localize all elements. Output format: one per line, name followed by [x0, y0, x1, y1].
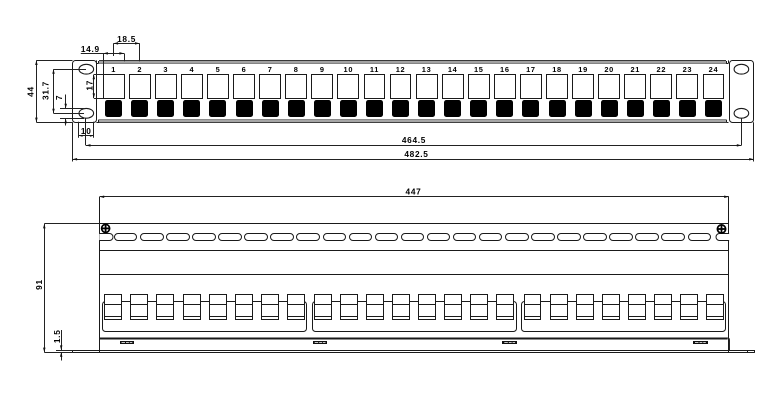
svg-text:91: 91 [34, 279, 44, 290]
svg-text:15: 15 [474, 65, 484, 74]
svg-text:14.9: 14.9 [81, 44, 100, 54]
svg-text:5: 5 [216, 65, 221, 74]
svg-text:6: 6 [242, 65, 247, 74]
svg-text:17: 17 [84, 80, 94, 91]
svg-text:464.5: 464.5 [402, 135, 426, 145]
svg-text:3: 3 [163, 65, 168, 74]
svg-text:19: 19 [578, 65, 588, 74]
svg-text:12: 12 [396, 65, 406, 74]
svg-text:4: 4 [189, 65, 194, 74]
svg-text:44: 44 [26, 86, 36, 97]
svg-text:1: 1 [111, 65, 116, 74]
svg-text:2: 2 [137, 65, 142, 74]
svg-text:10: 10 [81, 126, 92, 136]
svg-text:31.7: 31.7 [40, 81, 50, 100]
svg-text:13: 13 [422, 65, 432, 74]
svg-text:8: 8 [294, 65, 299, 74]
svg-text:7: 7 [54, 95, 64, 100]
svg-text:447: 447 [406, 187, 422, 197]
svg-text:7: 7 [268, 65, 273, 74]
svg-text:18: 18 [552, 65, 562, 74]
svg-text:9: 9 [320, 65, 325, 74]
svg-text:21: 21 [630, 65, 640, 74]
svg-text:18.5: 18.5 [117, 34, 136, 44]
svg-text:23: 23 [683, 65, 693, 74]
svg-text:14: 14 [448, 65, 458, 74]
svg-text:17: 17 [526, 65, 536, 74]
svg-text:1.5: 1.5 [52, 329, 62, 343]
svg-text:24: 24 [709, 65, 719, 74]
svg-text:16: 16 [500, 65, 510, 74]
svg-text:11: 11 [370, 65, 379, 74]
svg-text:20: 20 [604, 65, 614, 74]
svg-text:482.5: 482.5 [404, 149, 428, 159]
svg-text:10: 10 [344, 65, 354, 74]
svg-text:22: 22 [657, 65, 667, 74]
